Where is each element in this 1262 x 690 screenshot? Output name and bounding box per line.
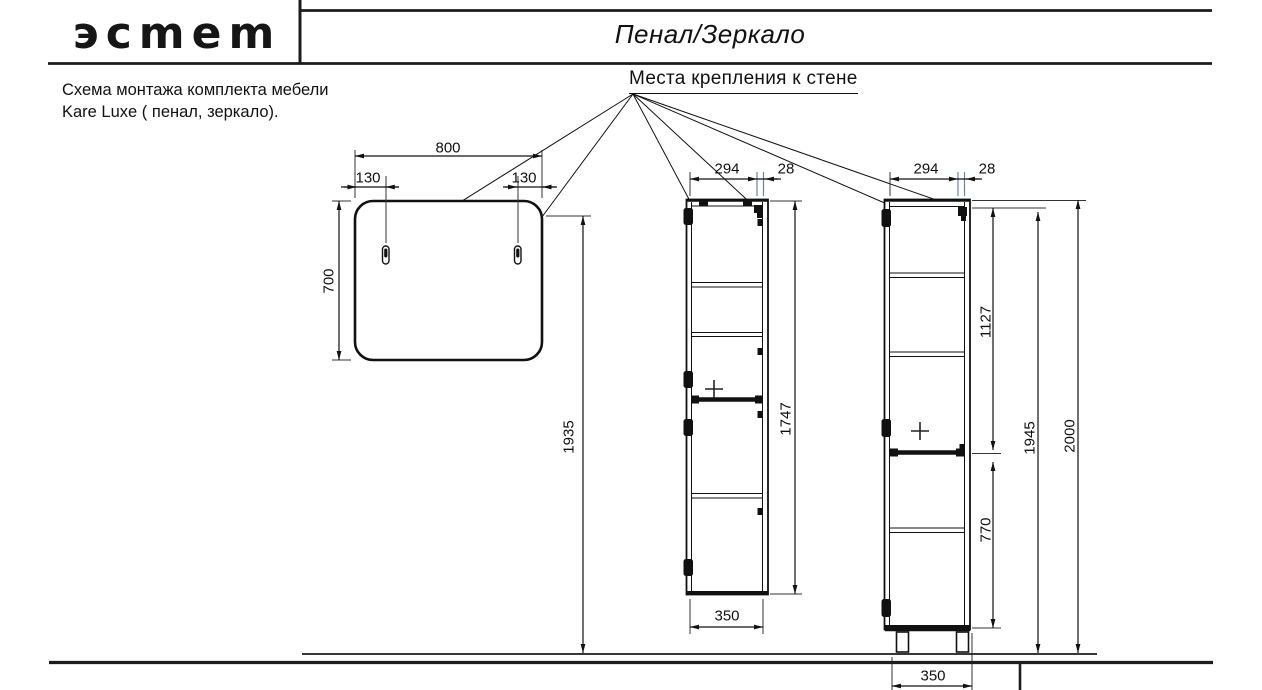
dim-floor-cabinet-total-height: 2000: [1062, 419, 1079, 452]
wall-cabinet-drawing: [684, 200, 769, 595]
sheet-title: Пенал/Зеркало: [460, 19, 960, 50]
floor-cabinet-feet: [897, 632, 969, 652]
dim-wall-cabinet-height: 1747: [778, 402, 795, 435]
dim-mirror-width: 800: [435, 140, 460, 157]
mounting-note: Схема монтажа комплекта мебели Kare Luxe…: [62, 79, 329, 123]
mounting-note-line1: Схема монтажа комплекта мебели: [62, 79, 329, 101]
dim-floor-cabinet-width: 350: [920, 668, 945, 685]
dim-wall-cabinet-bracket-offset: 28: [778, 161, 795, 178]
wall-mount-callout-label: Места крепления к стене: [629, 68, 858, 94]
dim-floor-cabinet-lower-bracket: 770: [978, 517, 995, 542]
dim-mirror-hanger-right: 130: [511, 170, 536, 187]
dim-mirror-mount-height: 1935: [561, 420, 578, 453]
dim-mirror-height: 700: [321, 268, 338, 293]
drawing-sheet: эсmem Пенал/Зеркало Схема монтажа компле…: [0, 0, 1262, 690]
mounting-note-line2: Kare Luxe ( пенал, зеркало).: [62, 101, 329, 123]
brand-logo: эсmem: [62, 8, 292, 59]
dim-wall-cabinet-width: 350: [714, 608, 739, 625]
dim-mirror-hanger-left: 130: [355, 170, 380, 187]
dim-floor-cabinet-bracket-offset: 28: [979, 161, 996, 178]
floor-cabinet-drawing: [882, 200, 971, 653]
mirror-drawing: [355, 201, 542, 360]
dim-floor-cabinet-mount-height: 1945: [1022, 421, 1039, 454]
dim-floor-cabinet-bracket-span: 294: [913, 161, 938, 178]
dim-floor-cabinet-upper-bracket: 1127: [978, 306, 995, 338]
floor-and-border: [49, 654, 1213, 690]
dim-wall-cabinet-bracket-span: 294: [714, 161, 739, 178]
